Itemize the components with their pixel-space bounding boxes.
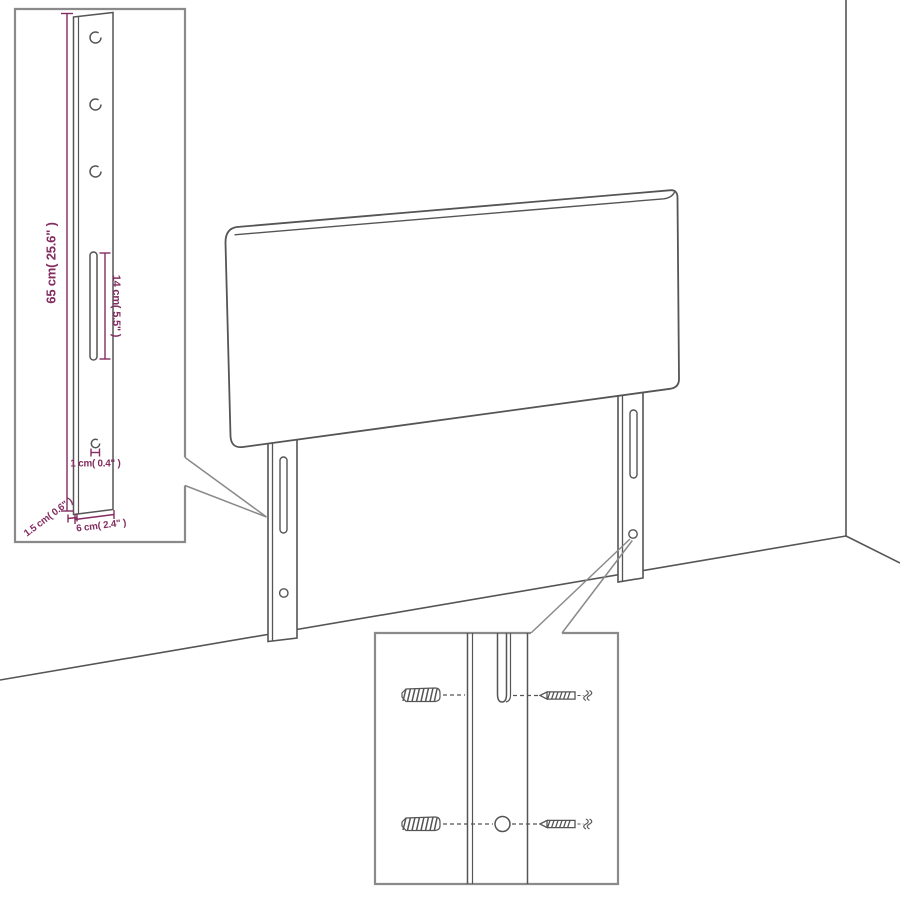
left-leg-hole xyxy=(280,589,288,597)
dim-label-height: 65 cm( 25.6" ) xyxy=(44,222,59,303)
left-leg-slot xyxy=(280,457,287,533)
leg-detail-inset: 65 cm( 25.6" ) 14 cm( 5.5" ) 1 cm( 0.4" … xyxy=(15,9,185,542)
left-leg xyxy=(268,415,297,642)
callout-lines xyxy=(185,458,632,634)
mounting-inset-callout-right xyxy=(562,541,632,634)
right-leg-slot xyxy=(630,410,637,478)
headboard-panel xyxy=(225,190,679,447)
mounting-inset-callout-left xyxy=(531,539,630,633)
post-bottom-hole xyxy=(91,439,99,447)
post-slot xyxy=(90,252,97,360)
headboard-diagram: 65 cm( 25.6" ) 14 cm( 5.5" ) 1 cm( 0.4" … xyxy=(0,0,900,900)
post-hole-2 xyxy=(90,99,101,110)
mounting-detail-inset xyxy=(375,633,618,884)
post-hole-1 xyxy=(90,32,101,43)
diagram-canvas: 65 cm( 25.6" ) 14 cm( 5.5" ) 1 cm( 0.4" … xyxy=(0,0,900,900)
leg-inset-callout-upper xyxy=(185,458,267,518)
leg-inset-callout-lower xyxy=(185,486,267,518)
right-leg-body xyxy=(618,373,643,582)
dim-label-slot: 14 cm( 5.5" ) xyxy=(110,275,122,338)
right-leg-hole xyxy=(629,530,637,538)
right-leg xyxy=(618,373,643,582)
mounting-detail-inset-box xyxy=(375,633,618,884)
dim-label-hole: 1 cm( 0.4" ) xyxy=(70,459,120,470)
post-hole-3 xyxy=(90,166,101,177)
floor-line-right xyxy=(846,536,900,563)
panel-outline xyxy=(225,190,679,447)
